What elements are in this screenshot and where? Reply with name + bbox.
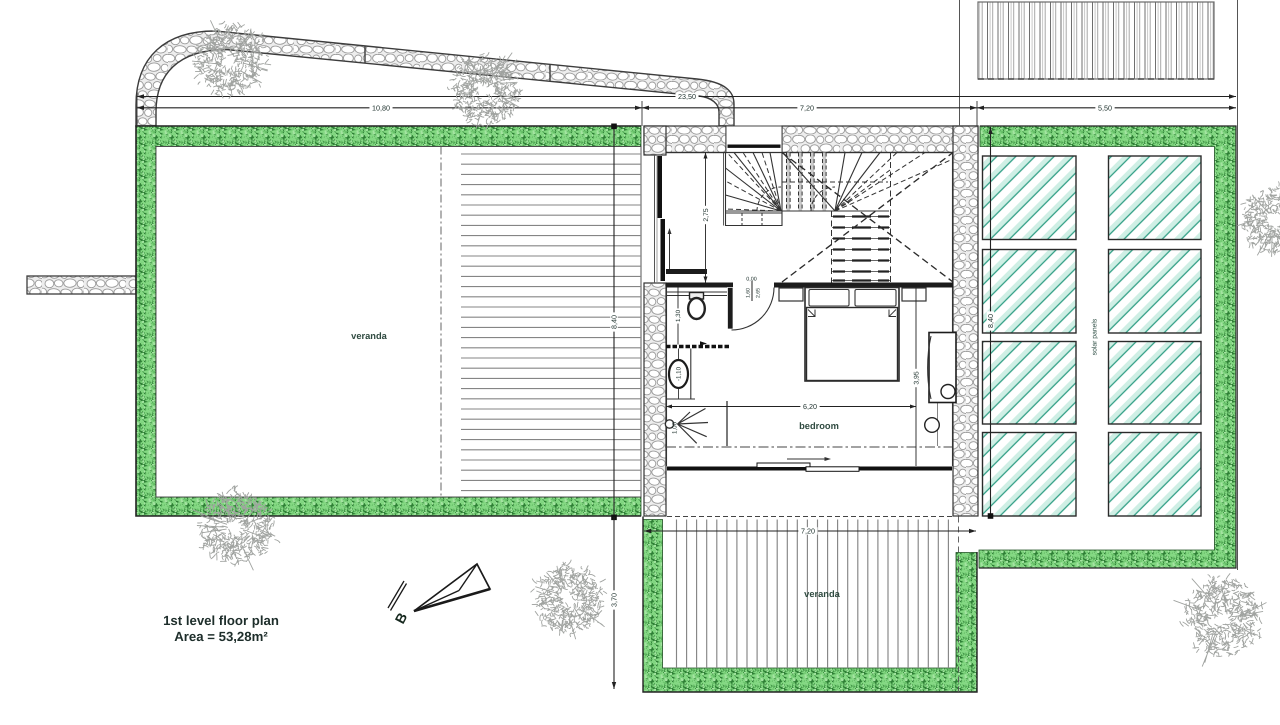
svg-text:Area = 53,28m²: Area = 53,28m²: [174, 629, 268, 644]
svg-text:5,50: 5,50: [1098, 103, 1112, 112]
svg-text:1st level floor plan: 1st level floor plan: [163, 613, 279, 628]
svg-text:1,30: 1,30: [675, 309, 682, 322]
svg-text:6,20: 6,20: [803, 402, 817, 411]
svg-text:2,75: 2,75: [703, 208, 710, 221]
svg-text:veranda: veranda: [351, 331, 387, 341]
svg-text:7,20: 7,20: [801, 527, 815, 536]
svg-text:bedroom: bedroom: [799, 421, 839, 431]
svg-text:1,60: 1,60: [745, 288, 751, 298]
svg-text:veranda: veranda: [804, 589, 840, 599]
svg-text:8,40: 8,40: [986, 314, 995, 328]
svg-text:10,80: 10,80: [372, 103, 390, 112]
svg-text:23,50: 23,50: [678, 92, 696, 101]
svg-text:3,70: 3,70: [610, 593, 619, 607]
svg-text:0,00: 0,00: [746, 276, 757, 282]
svg-text:3,95: 3,95: [913, 371, 920, 384]
svg-text:8,40: 8,40: [610, 315, 619, 329]
svg-text:-1,10: -1,10: [676, 366, 683, 381]
svg-text:solar panels: solar panels: [1091, 318, 1098, 355]
svg-text:1,00: 1,00: [672, 421, 679, 434]
svg-text:2,65: 2,65: [755, 288, 761, 298]
svg-text:7,20: 7,20: [800, 103, 814, 112]
